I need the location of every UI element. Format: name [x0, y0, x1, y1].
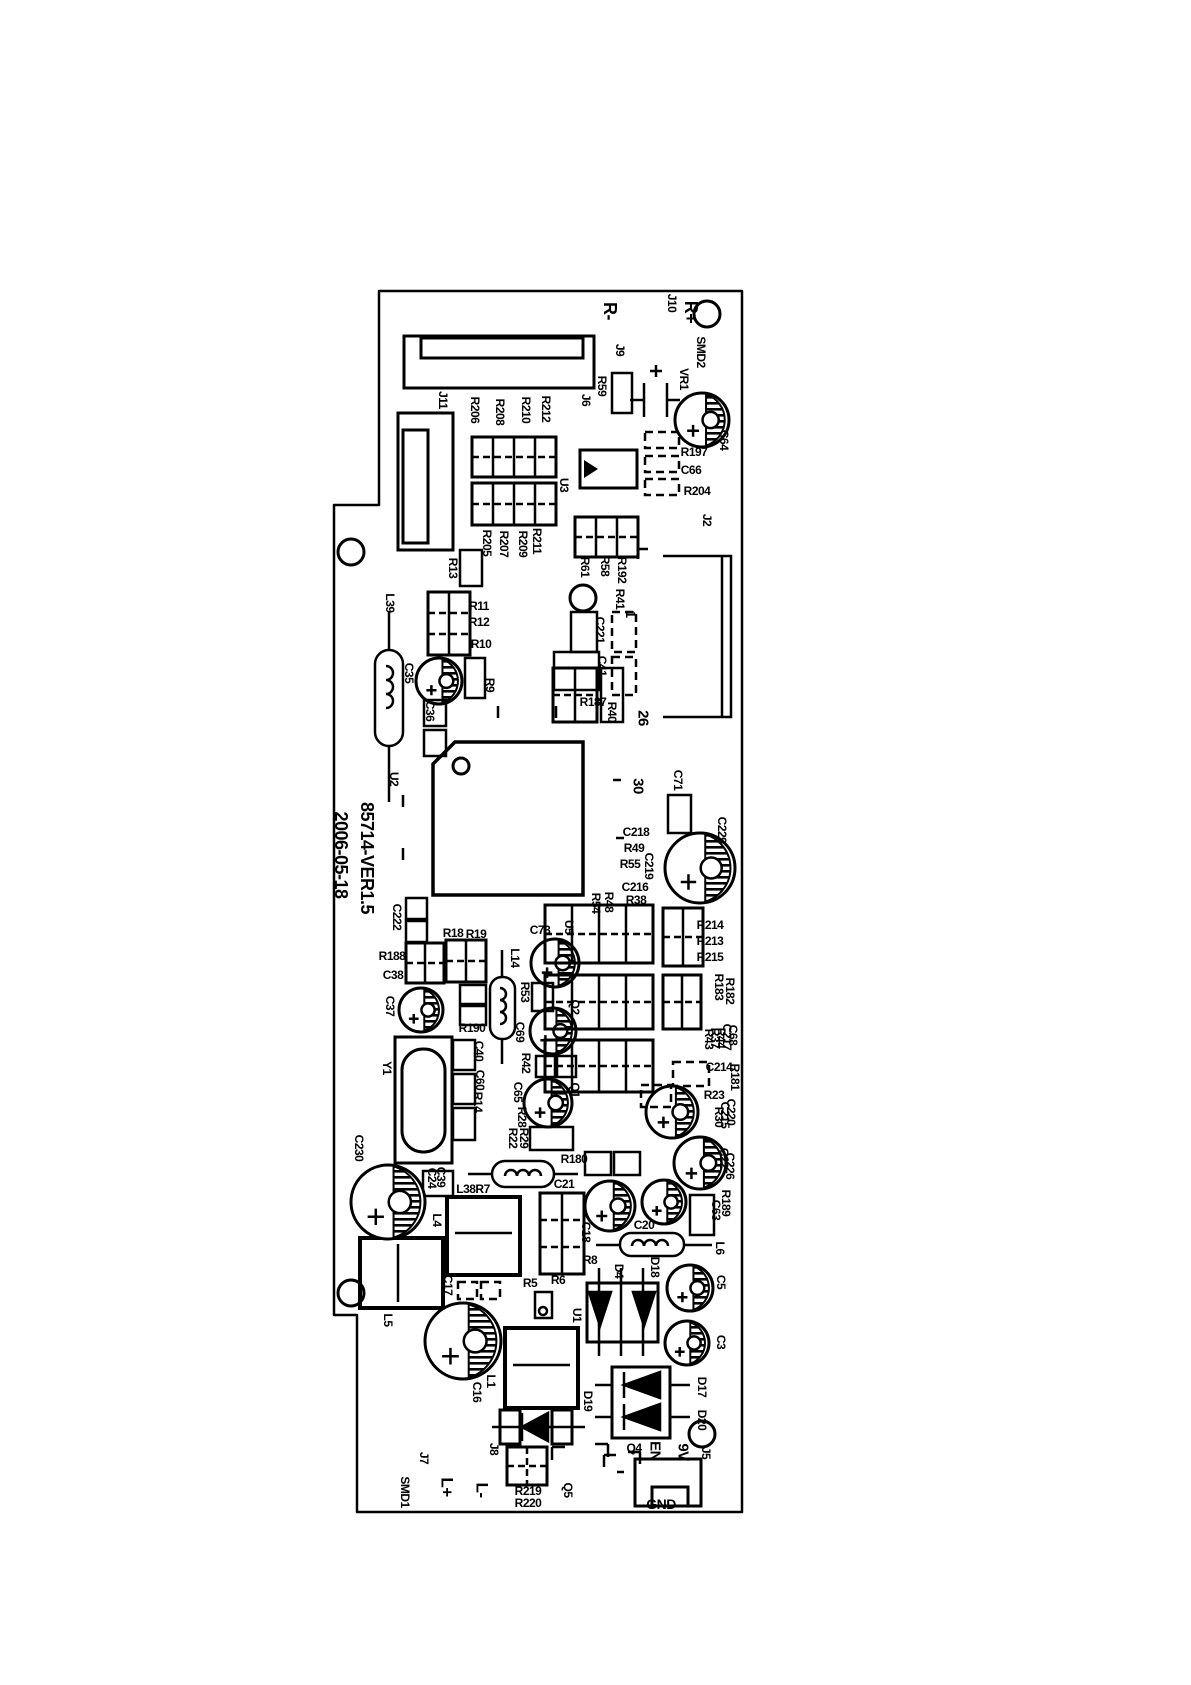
smd-pad: [453, 1040, 475, 1070]
smd-pad: [554, 652, 599, 690]
smd-pad: [460, 1006, 486, 1025]
connector-j2: [638, 549, 731, 717]
smd-pad: [614, 1152, 640, 1175]
smd-pad: [645, 432, 679, 448]
board-silkscreen: [0, 0, 1191, 1685]
smd-pad: [530, 1127, 573, 1150]
j9-cap-symbol: [630, 365, 680, 417]
smd-pad: [453, 1074, 475, 1104]
smd-pad: [612, 612, 636, 652]
q4-q5-brackets: [552, 1444, 640, 1472]
mounting-hole-bottom-right: [689, 1421, 715, 1447]
cap-pad: [389, 1191, 411, 1213]
r5-part: [535, 1292, 552, 1318]
mounting-hole-mid-left: [338, 539, 364, 565]
connector-j5: [635, 1459, 701, 1506]
smd-pad: [612, 373, 632, 413]
d17-diode: [624, 1372, 660, 1398]
l4-block: [447, 1197, 520, 1275]
connector-j6: [404, 336, 594, 388]
d18-diode: [633, 1292, 655, 1326]
mounting-hole-top-right: [694, 301, 720, 327]
l6-inductor: [596, 1233, 712, 1256]
l14-inductor: [490, 950, 515, 1064]
cap-pad: [553, 1024, 567, 1038]
smd-pad: [645, 479, 679, 495]
smd-pad: [481, 1282, 500, 1299]
l38-inductor: [468, 1161, 578, 1187]
cap-pad: [701, 858, 722, 879]
smd-pad: [460, 550, 482, 586]
cap-pad: [701, 1155, 717, 1171]
c39-c24-box: [423, 1171, 453, 1196]
cap-pad: [439, 674, 453, 688]
c221-through-hole: [570, 585, 596, 611]
smd-pad: [585, 1152, 611, 1175]
smd-pad: [460, 985, 486, 1004]
smd-pad: [458, 1282, 477, 1299]
d4-diode: [589, 1292, 611, 1326]
d17-d20-diode-pack: [595, 1367, 690, 1438]
cap-pad: [673, 1104, 689, 1120]
smd-pad: [453, 1108, 475, 1140]
smd-pad: [571, 612, 597, 652]
smd-pad: [645, 456, 679, 472]
r219-r220-block: [507, 1447, 547, 1485]
cap-pad: [548, 1096, 562, 1110]
cap-pad: [690, 1281, 704, 1295]
cap-pad: [703, 412, 719, 428]
smd-pad: [406, 921, 427, 942]
cap-pad: [611, 1199, 626, 1214]
u2-chip: [433, 742, 583, 895]
pcb-assembly-drawing: 85714-VER1.5 2006-05-18 R-J10R+J9SMD2VR1…: [0, 0, 1191, 1685]
u3-area-diode: [580, 450, 637, 488]
cap-pad: [464, 1330, 487, 1353]
cap-pad: [664, 1195, 677, 1208]
smd-pad: [406, 898, 427, 919]
l5-block: [360, 1238, 443, 1308]
j8-diode: [492, 1410, 585, 1444]
smd-pad: [690, 1195, 714, 1235]
smd-pad: [668, 795, 691, 833]
l39-inductor: [375, 612, 403, 802]
y1-crystal: [395, 1037, 452, 1163]
connector-j11: [398, 413, 453, 550]
cap-pad: [421, 1003, 434, 1016]
l1-block: [505, 1328, 578, 1408]
u1-diode-pack: [587, 1268, 658, 1356]
smd-pad: [673, 1062, 709, 1086]
pad-block: [575, 517, 638, 557]
cap-pad: [687, 1336, 700, 1349]
smd-pad: [465, 658, 485, 698]
d20-diode: [624, 1404, 660, 1430]
